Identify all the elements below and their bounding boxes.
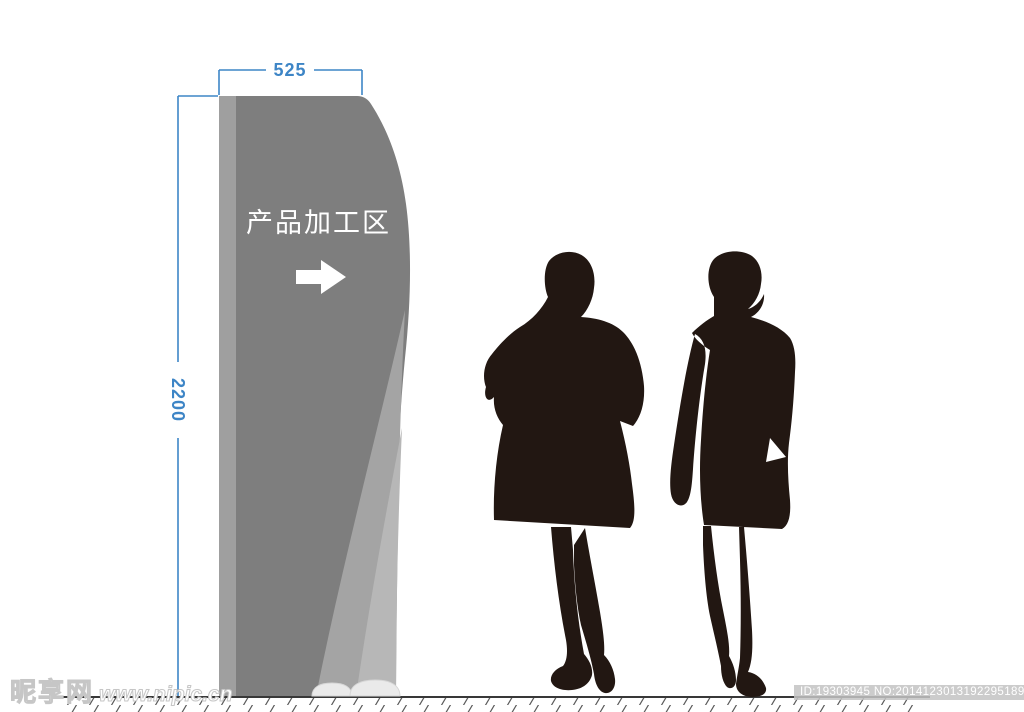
signage-design-canvas: 525 2200 产品加工区 昵享网 www.nipic.cn ID:19303…: [0, 0, 1024, 712]
sign-panel-text: 产品加工区: [246, 201, 406, 240]
pylon-sign: [219, 96, 410, 696]
watermark: 昵享网 www.nipic.cn: [10, 672, 232, 709]
height-dimension-label: 2200: [166, 372, 190, 428]
watermark-site-url: www.nipic.cn: [99, 683, 232, 707]
width-dimension-label: 525: [266, 60, 314, 81]
pylon-edge-strip: [219, 96, 236, 696]
silhouette-person-coat: [484, 252, 644, 693]
scene-graphic: [0, 0, 1024, 712]
silhouette-person-dress: [670, 251, 795, 697]
image-id-label: ID:19303945 NO:20141230131922951893: [794, 685, 1024, 700]
watermark-site-name: 昵享网: [10, 672, 94, 709]
